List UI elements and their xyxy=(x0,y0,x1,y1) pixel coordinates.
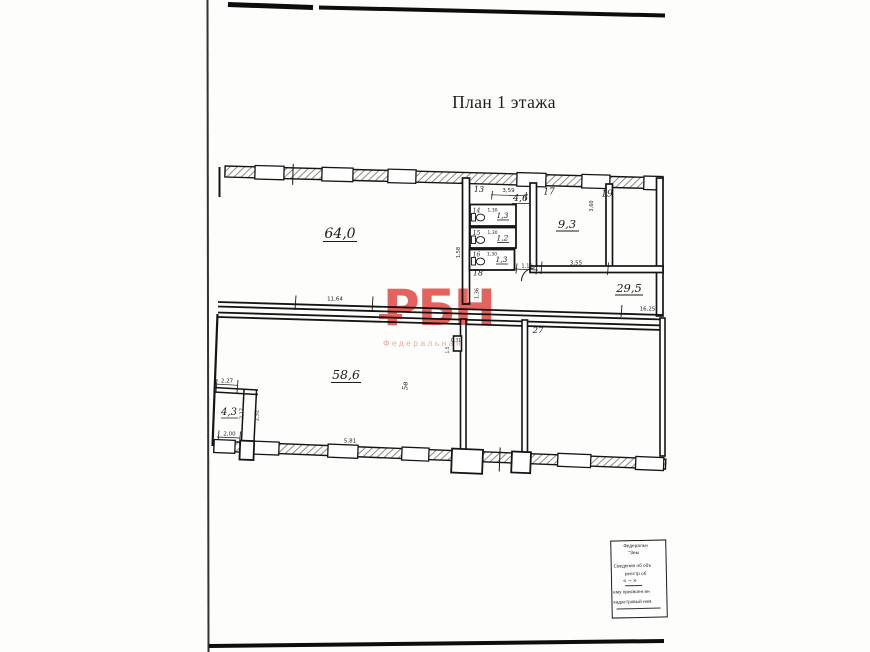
stamp-line: реестр об xyxy=(625,571,647,576)
dim-360: 3,60 xyxy=(589,200,595,211)
bottom-exterior-wall xyxy=(213,436,666,481)
window xyxy=(255,166,284,180)
dim-158: 1,58 xyxy=(456,247,462,258)
area-room93: 9,3 xyxy=(558,217,576,231)
area-room46: 4,6 xyxy=(512,193,528,204)
wall-pier xyxy=(451,449,483,474)
dim-1625: 16,25 xyxy=(640,307,656,313)
dim-031: 0,31 xyxy=(451,338,461,344)
window xyxy=(402,447,429,461)
dim-130a: 1,30 xyxy=(487,208,497,214)
area-wc15: 1,2 xyxy=(497,234,509,243)
stamp-line: Сведения об объ xyxy=(614,564,651,569)
roomnum-27: 27 xyxy=(532,326,544,336)
dim-217: 2,17 xyxy=(240,408,246,419)
area-room295: 29,5 xyxy=(615,281,642,295)
wall-pier xyxy=(239,441,254,461)
area-wc16: 1,3 xyxy=(496,255,508,264)
area-room64: 64,0 xyxy=(324,226,355,242)
roomnum-14: 14 xyxy=(473,208,481,215)
window xyxy=(214,440,236,454)
area-room586: 58,6 xyxy=(332,367,360,382)
roomnum-13: 13 xyxy=(474,185,484,194)
area-underlines xyxy=(221,204,643,419)
mark-5v: 5в xyxy=(402,382,410,391)
window xyxy=(322,167,353,181)
corridor-walls xyxy=(218,302,663,330)
stamp-line: кадастровый ном xyxy=(613,599,651,604)
window xyxy=(388,169,416,183)
dim-15: 1,5 xyxy=(445,346,451,353)
dim-355: 3,55 xyxy=(570,261,583,267)
dim-581: 5,81 xyxy=(344,439,356,445)
dim-110: 1,10 xyxy=(521,264,532,270)
top-exterior-wall xyxy=(225,162,663,195)
window xyxy=(252,441,279,455)
window xyxy=(635,456,663,470)
area-wc14: 1,3 xyxy=(497,211,509,220)
stamp-box: Федеральн "Зем Сведения об объ реестр об… xyxy=(610,539,668,618)
roomnum-19: 19 xyxy=(601,190,613,200)
stamp-rule xyxy=(617,608,661,610)
dim-359: 3,59 xyxy=(502,188,515,194)
dim-252: 2,52 xyxy=(255,410,261,421)
window xyxy=(557,453,590,467)
dim-200: 2,00 xyxy=(223,432,236,438)
roomnum-16: 16 xyxy=(473,252,481,259)
scanned-floorplan-page: 64,0 4,6 1,3 1,2 1,3 9,3 29,5 58,6 4,3 1… xyxy=(0,0,870,652)
stamp-line: Федеральн xyxy=(623,544,647,549)
roomnum-15: 15 xyxy=(473,230,481,237)
dim-1164: 11,64 xyxy=(327,297,343,303)
stamp-date-underline xyxy=(625,585,642,586)
roomnum-17: 17 xyxy=(543,188,555,198)
window xyxy=(328,444,358,458)
dim-130c: 1,30 xyxy=(487,252,497,258)
dim-227: 2,27 xyxy=(221,379,234,385)
stamp-line: "Зем xyxy=(628,550,638,555)
dim-130b: 1,30 xyxy=(487,230,497,236)
dim-136: 1,36 xyxy=(475,288,481,299)
page-title: План 1 этажа xyxy=(404,92,604,113)
lower-block-walls xyxy=(454,318,666,456)
roomnum-18: 18 xyxy=(473,269,483,278)
wall-pier xyxy=(511,451,531,473)
stamp-date-line: « ~ » xyxy=(623,578,637,584)
stamp-line: ему присвоен ин xyxy=(613,589,649,594)
area-room43: 4,3 xyxy=(220,407,237,418)
